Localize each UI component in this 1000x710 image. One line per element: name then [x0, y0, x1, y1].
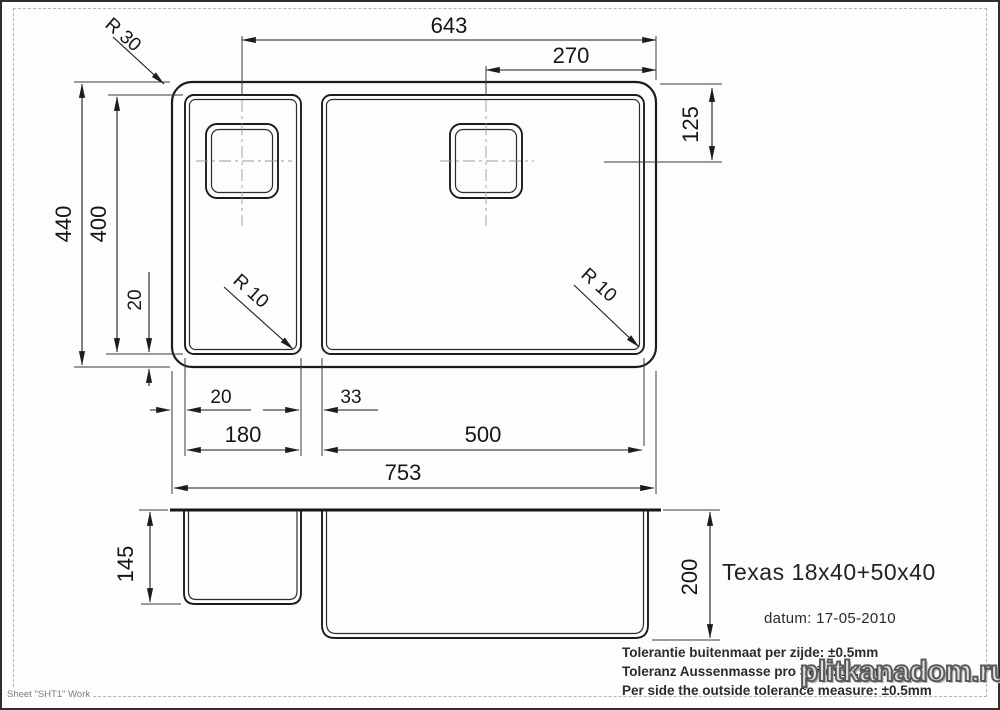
- dim-label-145: 145: [113, 546, 138, 583]
- dim-label-500: 500: [465, 422, 502, 447]
- date-label: datum: 17-05-2010: [764, 610, 896, 627]
- right-bowl-inner-edge: [327, 100, 640, 350]
- side-right-bowl: [322, 511, 648, 638]
- side-left-bowl-inner: [189, 511, 298, 600]
- dim-label-r10-right: R 10: [577, 264, 621, 306]
- sheet-tab-label: Sheet "SHT1" Work: [4, 689, 93, 700]
- dimension-lines: [82, 37, 712, 638]
- dim-label-440: 440: [51, 206, 76, 243]
- right-bowl-outline: [322, 95, 644, 354]
- dim-label-200: 200: [677, 559, 702, 596]
- site-watermark: plitkanadom.ru: [800, 655, 1000, 689]
- sink-technical-drawing: 643 270 125 440 400 20 R 30 R 10 R 10 20…: [0, 0, 1000, 710]
- dim-label-r30: R 30: [101, 14, 145, 56]
- dim-label-753: 753: [385, 460, 422, 485]
- model-title: Texas 18x40+50x40: [722, 559, 936, 586]
- dim-label-400: 400: [86, 206, 111, 243]
- side-right-bowl-inner: [327, 511, 644, 634]
- dim-label-125: 125: [678, 106, 703, 143]
- dim-label-20-vertical: 20: [125, 289, 146, 310]
- dim-label-180: 180: [225, 422, 262, 447]
- dim-label-33: 33: [340, 387, 361, 408]
- side-view: [170, 510, 661, 638]
- side-left-bowl: [184, 511, 301, 604]
- left-bowl-outline: [185, 95, 301, 354]
- dim-label-r10-left: R 10: [229, 270, 273, 312]
- dim-label-270: 270: [553, 43, 590, 68]
- dim-label-643: 643: [431, 13, 468, 38]
- dim-label-20-horizontal: 20: [210, 387, 231, 408]
- top-view: [172, 82, 656, 367]
